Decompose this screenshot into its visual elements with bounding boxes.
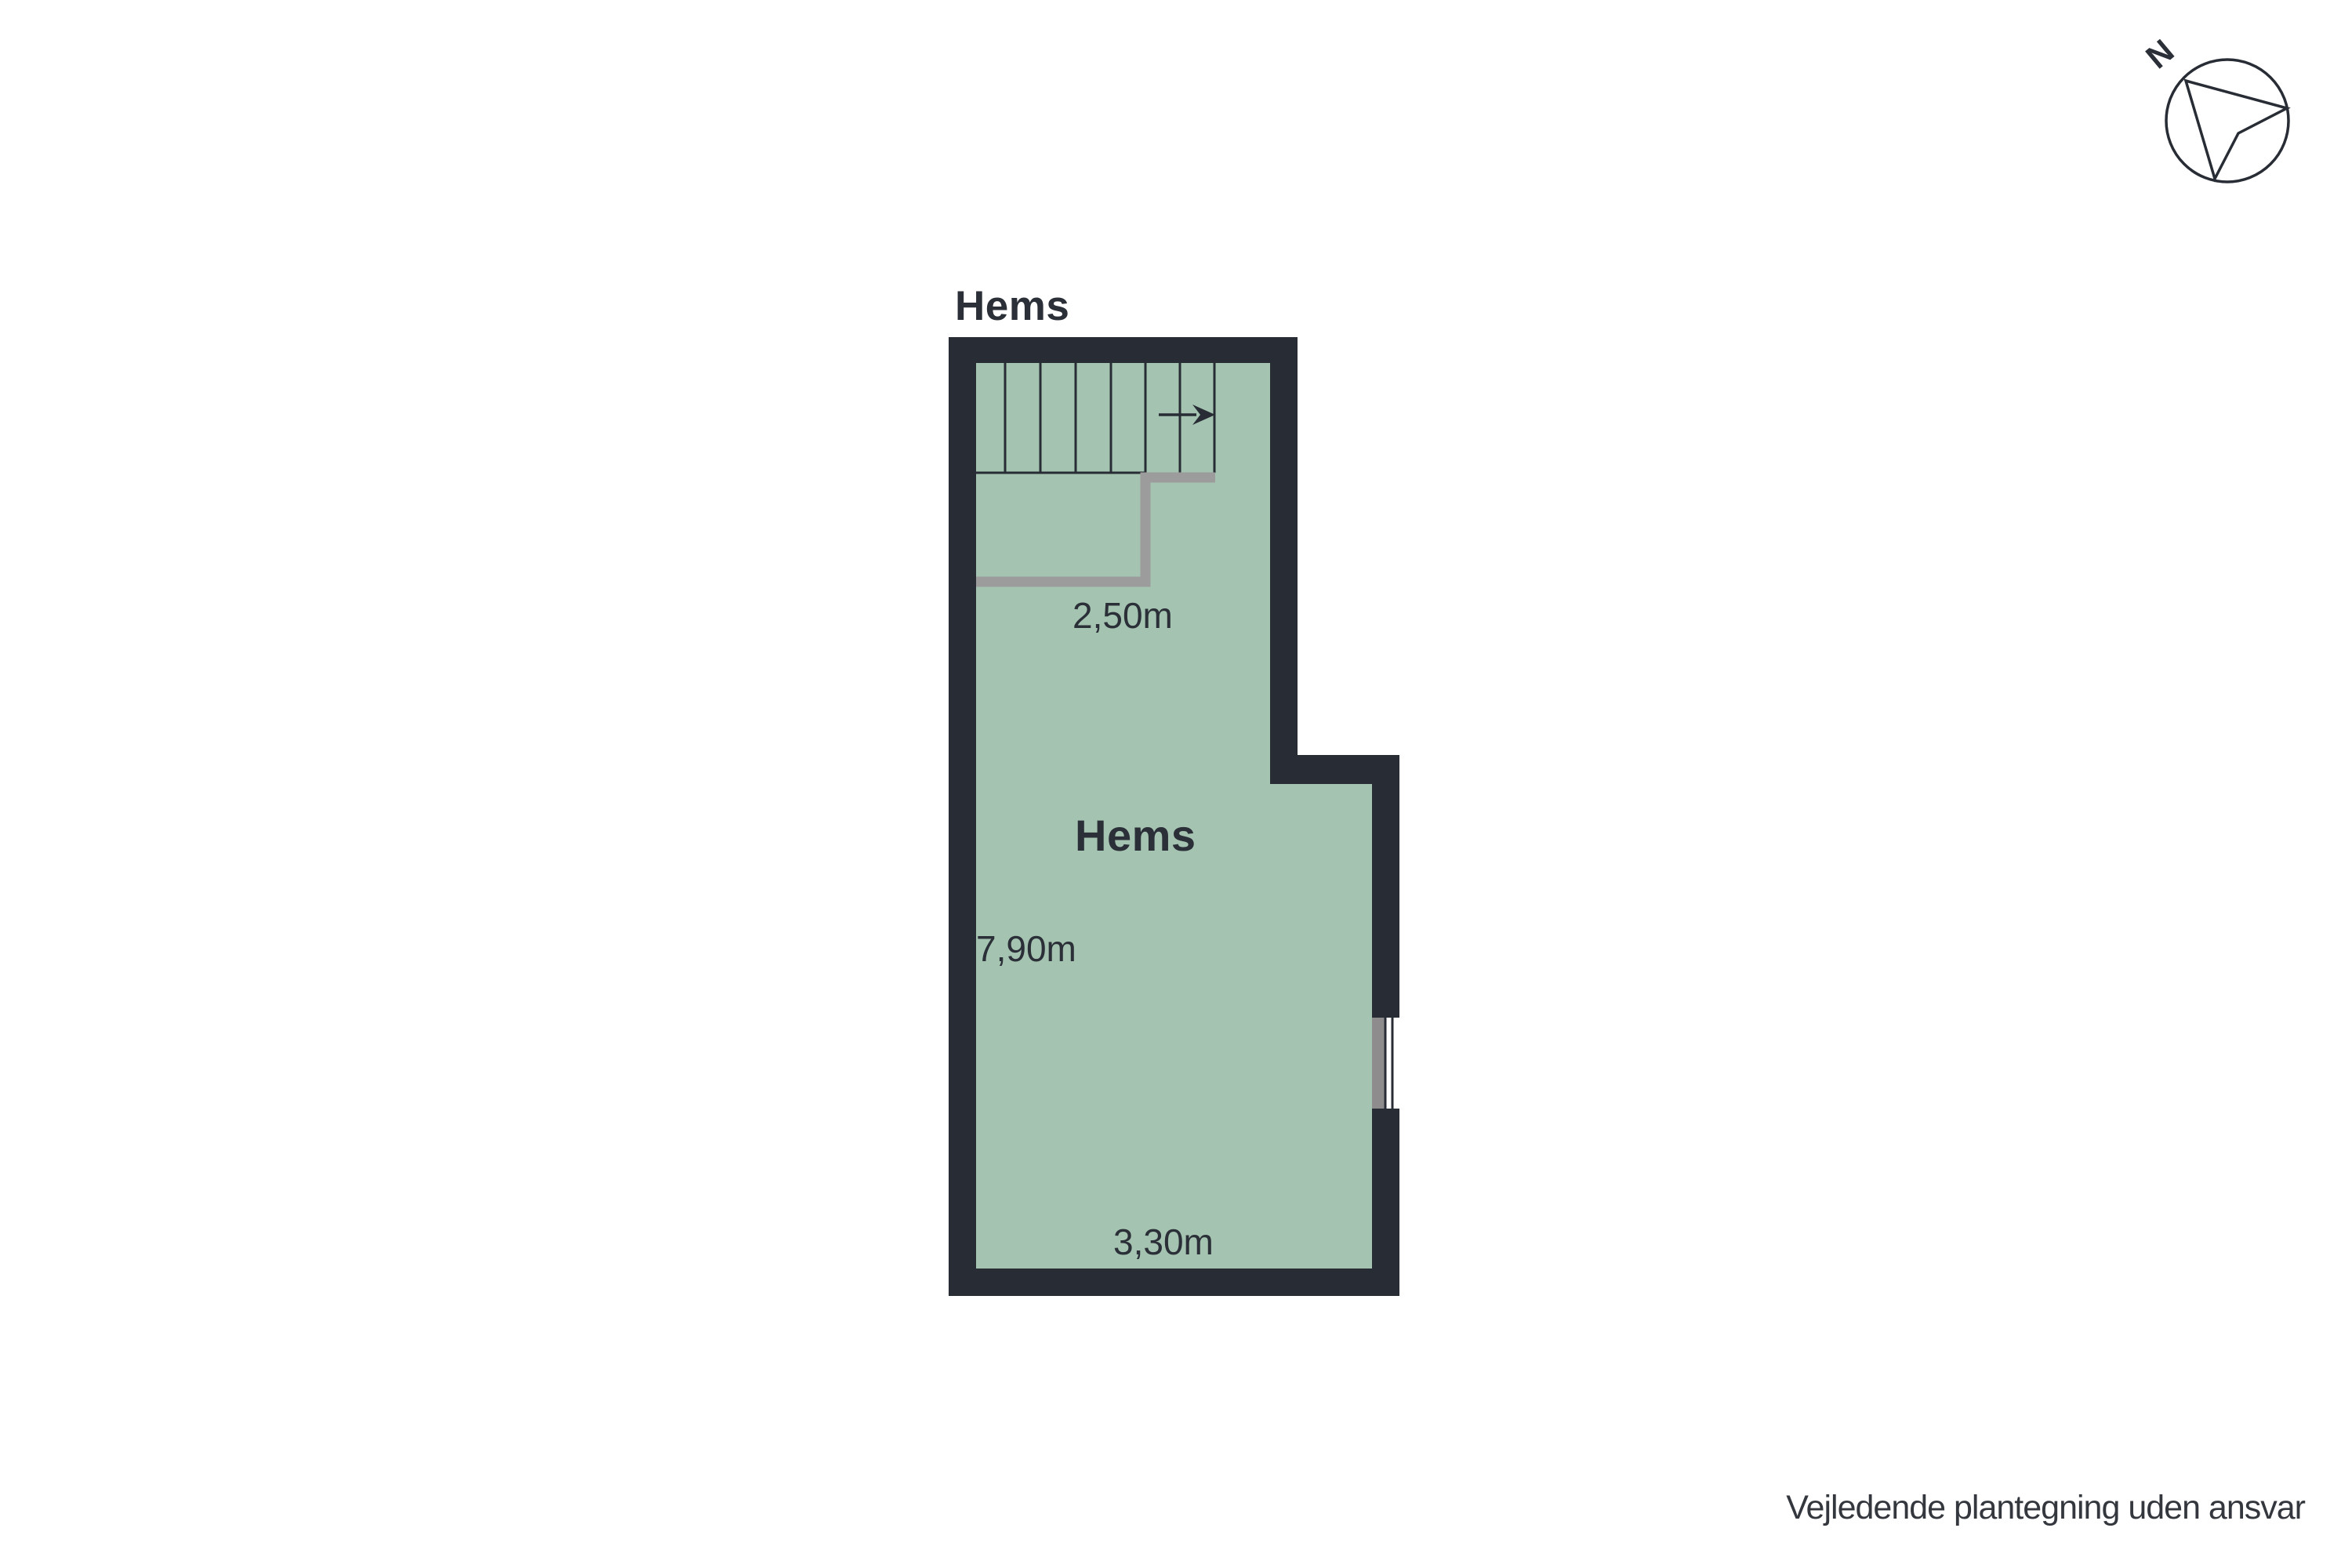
room-label: Hems	[1075, 814, 1196, 858]
plan-title: Hems	[955, 285, 1069, 327]
floor-plan-page: Hems Hems 2,50m 7,90m 3,30m N Vejledende…	[0, 0, 2352, 1568]
compass-rose	[2166, 60, 2288, 182]
dimension-width-top: 2,50m	[1073, 597, 1173, 633]
disclaimer-text: Vejledende plantegning uden ansvar	[1786, 1491, 2305, 1525]
dimension-height-left: 7,90m	[976, 931, 1076, 967]
window	[1372, 1018, 1402, 1109]
window-sill	[1372, 1018, 1385, 1109]
floor-plan-drawing	[0, 0, 2352, 1568]
dimension-width-bottom: 3,30m	[1113, 1224, 1214, 1260]
